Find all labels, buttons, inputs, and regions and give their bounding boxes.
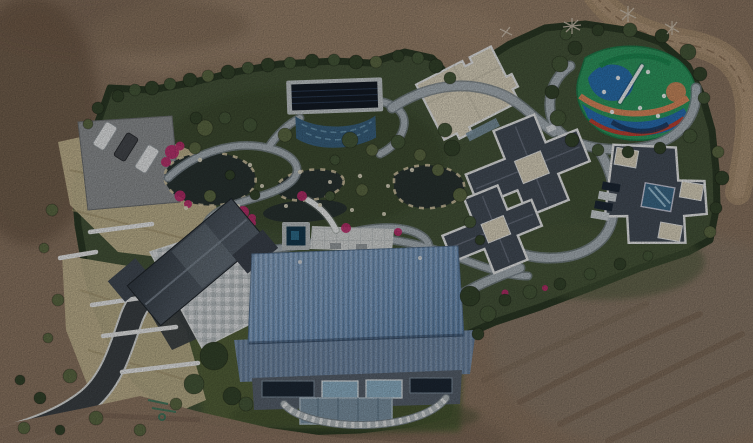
photo-grain <box>0 0 753 443</box>
aerial-photo <box>0 0 753 443</box>
aerial-photo-stage <box>0 0 753 443</box>
